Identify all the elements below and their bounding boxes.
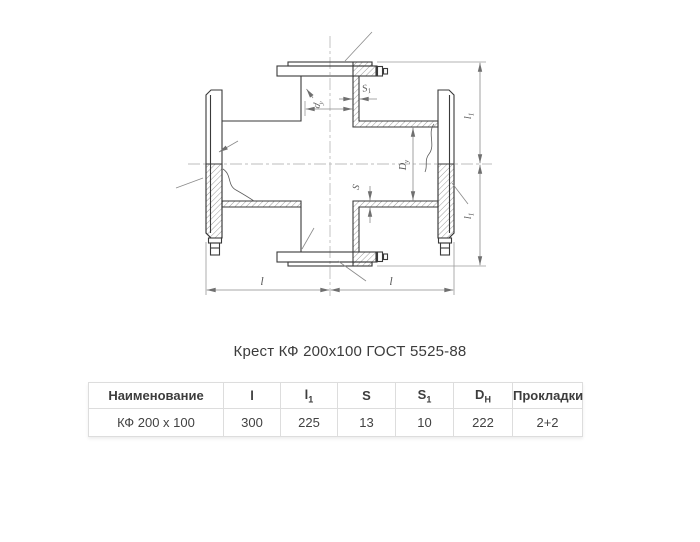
spec-cell-0-1: 300 bbox=[224, 409, 281, 437]
break-line-left bbox=[223, 169, 254, 201]
spec-cell-0-0: КФ 200 х 100 bbox=[89, 409, 224, 437]
spec-cell-0-2: 225 bbox=[281, 409, 338, 437]
leader-branch-neck bbox=[307, 89, 314, 98]
spec-col-header-5: DН bbox=[454, 383, 513, 409]
hatch-top-right-wall bbox=[353, 62, 438, 127]
spec-table-header-row: Наименованиеll1SS1DНПрокладки bbox=[89, 383, 583, 409]
dim-label-l-left: l bbox=[260, 274, 264, 288]
left-flange-bolt-shank bbox=[211, 243, 220, 255]
dim-label-d-small: dу bbox=[311, 98, 325, 110]
spec-col-header-4: S1 bbox=[396, 383, 454, 409]
spec-table-row: КФ 200 х 10030022513102222+2 bbox=[89, 409, 583, 437]
leader-bottom-flange bbox=[302, 228, 314, 249]
spec-table-header: Наименованиеll1SS1DНПрокладки bbox=[89, 383, 583, 409]
spec-cell-0-6: 2+2 bbox=[513, 409, 583, 437]
technical-drawing: l l l1 l1 S S1 dу Dу bbox=[0, 0, 700, 338]
page: l l l1 l1 S S1 dу Dу Крест КФ 200х100 ГО… bbox=[0, 0, 700, 542]
hatch-right-flange bbox=[438, 164, 454, 238]
break-line-right bbox=[425, 124, 434, 172]
spec-col-header-3: S bbox=[338, 383, 396, 409]
dim-label-l1-top: l1 bbox=[462, 113, 476, 120]
bottom-flange-bolt-b bbox=[384, 254, 388, 260]
dim-label-s1: S1 bbox=[361, 82, 372, 96]
spec-cell-0-3: 13 bbox=[338, 409, 396, 437]
hatch-bottom-right-wall bbox=[353, 201, 438, 266]
leader-top-flange bbox=[345, 32, 372, 61]
top-flange-bolt-b bbox=[384, 69, 388, 75]
spec-table: Наименованиеll1SS1DНПрокладки КФ 200 х 1… bbox=[88, 382, 583, 437]
right-flange-bolt-shank bbox=[441, 243, 450, 255]
drawing-caption: Крест КФ 200х100 ГОСТ 5525-88 bbox=[0, 343, 700, 360]
left-flange-bolt-head bbox=[209, 238, 222, 243]
leader-left-flange bbox=[176, 178, 203, 188]
right-flange-bolt-head bbox=[439, 238, 452, 243]
hatch-left-flange bbox=[206, 164, 222, 238]
spec-cell-0-4: 10 bbox=[396, 409, 454, 437]
pipe-top-left-outline bbox=[222, 76, 301, 121]
bottom-flange-bolt-a bbox=[378, 252, 383, 262]
dim-label-l-right: l bbox=[389, 274, 393, 288]
dim-label-l1-bottom: l1 bbox=[462, 213, 476, 220]
hatch-bottom-left-wall bbox=[222, 201, 301, 207]
top-flange-bolt-a bbox=[378, 67, 383, 77]
spec-table-body: КФ 200 х 10030022513102222+2 bbox=[89, 409, 583, 437]
spec-col-header-0: Наименование bbox=[89, 383, 224, 409]
spec-col-header-1: l bbox=[224, 383, 281, 409]
dim-label-s: S bbox=[351, 184, 363, 192]
spec-col-header-6: Прокладки bbox=[513, 383, 583, 409]
spec-col-header-2: l1 bbox=[281, 383, 338, 409]
spec-cell-0-5: 222 bbox=[454, 409, 513, 437]
dim-label-d-big: Dу bbox=[398, 159, 411, 171]
